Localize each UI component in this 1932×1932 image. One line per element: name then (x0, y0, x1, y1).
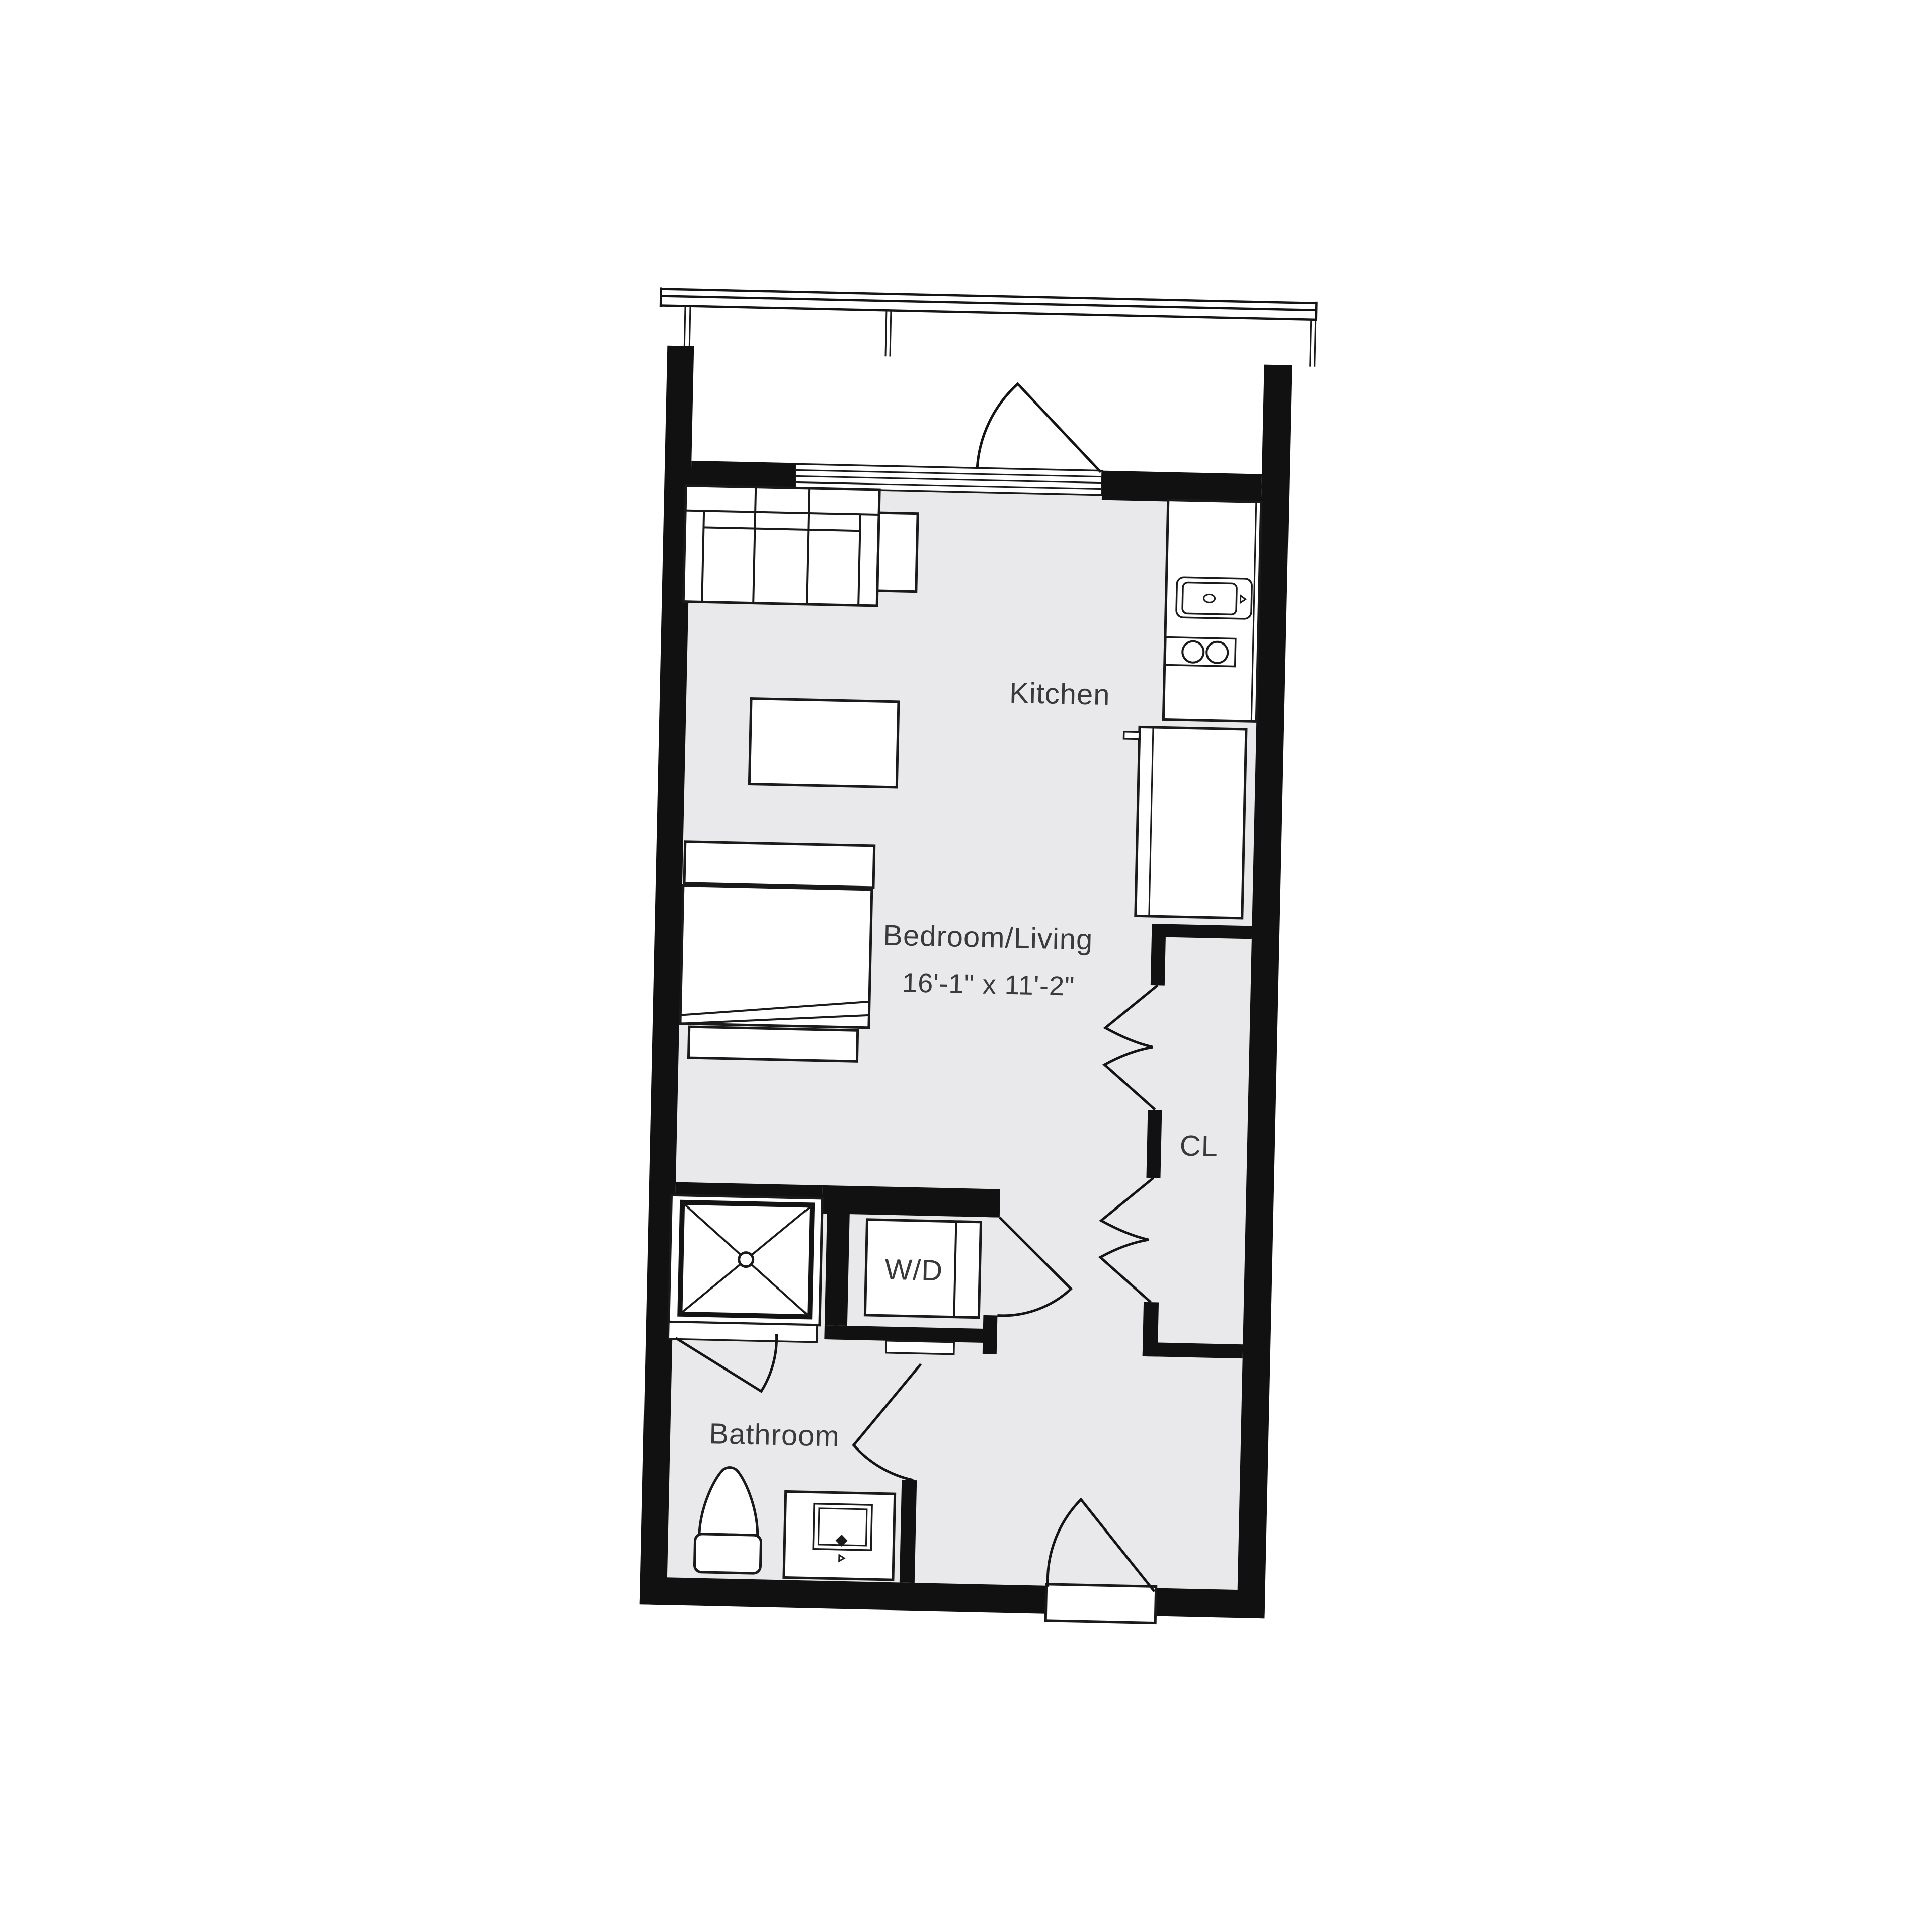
label-bedroom-living: Bedroom/Living (883, 919, 1093, 956)
floor-plan-svg: Kitchen Bedroom/Living 16'-1" x 11'-2" C… (0, 0, 1932, 1932)
wall-closet-top (1154, 924, 1252, 939)
wall-closet-stub-middle (1146, 1110, 1162, 1178)
wall-laundry-right-stub-top (986, 1189, 1000, 1218)
entry-door-threshold (1045, 1584, 1156, 1623)
bed-headboard (684, 842, 874, 888)
sofa (683, 486, 879, 606)
balcony-railing (660, 287, 1317, 366)
wall-bathroom-right (900, 1480, 917, 1583)
bed-mattress (680, 886, 872, 1028)
wall-top-left-segment (691, 461, 795, 489)
cooktop (1165, 637, 1236, 667)
door-swing-balcony (977, 383, 1103, 472)
label-closet: CL (1179, 1129, 1219, 1163)
bathroom-vanity (784, 1491, 895, 1580)
kitchen-sink (1176, 577, 1252, 619)
laundry-threshold (886, 1341, 954, 1354)
label-washer-dryer: W/D (884, 1253, 943, 1287)
bed-bench (688, 1027, 857, 1061)
wall-top-right-segment (1102, 471, 1262, 504)
wall-shower-laundry-divider (825, 1198, 850, 1326)
label-bedroom-dimensions: 16'-1" x 11'-2" (902, 968, 1075, 1001)
wall-closet-stub-top (1151, 924, 1166, 986)
wall-bottom-right-segment (1155, 1588, 1265, 1619)
coffee-table (749, 699, 899, 787)
shower (668, 1195, 822, 1342)
side-table (877, 513, 918, 592)
floor-plan-rotated-group: Kitchen Bedroom/Living 16'-1" x 11'-2" C… (632, 287, 1316, 1626)
label-kitchen: Kitchen (1009, 677, 1110, 711)
refrigerator (1120, 727, 1246, 918)
shower-curb (668, 1322, 817, 1342)
floor-plan-page: Kitchen Bedroom/Living 16'-1" x 11'-2" C… (0, 0, 1932, 1932)
label-bathroom: Bathroom (709, 1417, 840, 1453)
wall-closet-bottom (1143, 1342, 1243, 1358)
